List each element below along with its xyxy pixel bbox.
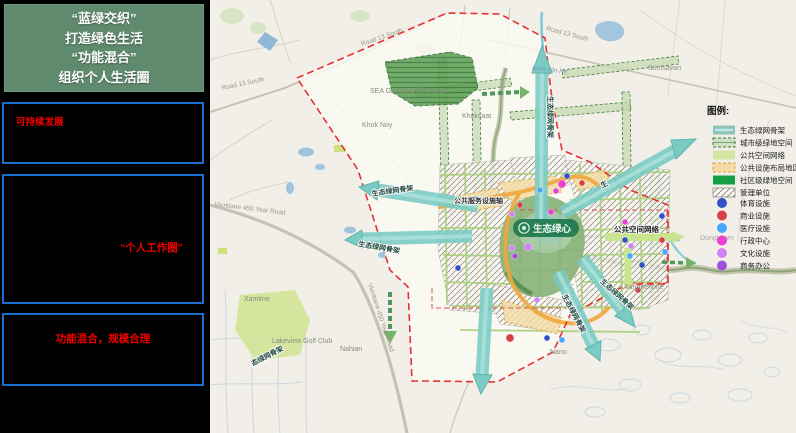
sidebar: “蓝绿交织” 打造绿色生活 “功能混合” 组织个人生活圈 可持续发展 “个人工作… (0, 0, 210, 433)
swatch-public-space (713, 151, 735, 160)
swatch-city-green (713, 138, 735, 147)
facility-dot (517, 202, 523, 208)
nano-label: Nano (550, 349, 567, 356)
headline-line-1: “蓝绿交织” (5, 9, 203, 29)
dot-sports (717, 198, 727, 208)
legend-label-medical: 医疗设施 (740, 223, 770, 233)
note-box-work-circle: “个人工作圈” (2, 174, 204, 304)
facility-dot (627, 253, 633, 259)
facility-dot (628, 243, 634, 249)
facility-dot (622, 237, 628, 243)
dot-commercial (717, 211, 727, 221)
legend-label-eco-network: 生态绿网骨架 (740, 125, 785, 135)
nahian-label: Nahian (340, 346, 362, 353)
note-label-work-circle: “个人工作圈” (120, 240, 183, 255)
facility-dot (506, 334, 514, 342)
khok-noy-label: Khok Noy (362, 122, 393, 129)
legend-label-community-green: 社区级绿地空间 (740, 175, 793, 185)
corridor-label-n: 生态绿网骨架 (546, 96, 555, 138)
dongkham-label: Dongkham (700, 235, 734, 242)
note-label-sustainability: 可持续发展 (16, 114, 64, 128)
legend-label-admin: 行政中心 (740, 236, 770, 246)
facility-dot (559, 337, 565, 343)
eco-green-heart-label: 生态绿心 (513, 219, 579, 237)
facility-dot (534, 297, 540, 303)
facility-dot (639, 262, 645, 268)
somsavan-label: Somsavan (648, 65, 681, 72)
note-box-mixed-use: 功能混合，规模合理 (2, 313, 204, 386)
facility-dot (553, 188, 559, 194)
swatch-management-unit (713, 188, 735, 197)
eco-green-heart-text: 生态绿心 (533, 223, 572, 235)
facility-dot (455, 265, 461, 271)
map-canvas: 生态绿心 Road 13 South Road 13 South Road 13… (210, 0, 796, 433)
facility-dot (579, 180, 585, 186)
legend-label-city-green: 城市级绿地空间 (740, 138, 793, 148)
headline-line-3: “功能混合” (5, 48, 203, 68)
facility-dot (659, 213, 665, 219)
facility-dot (509, 211, 515, 217)
legend-label-public-space: 公共空间网络 (740, 150, 785, 160)
legend-label-commercial: 商业设施 (740, 211, 770, 221)
swatch-community-green (713, 176, 735, 185)
facility-dot (564, 173, 570, 179)
legend-label-culture: 文化设施 (740, 248, 770, 258)
xanghenone-label: Xanghenone (624, 284, 664, 291)
dot-business (717, 261, 727, 271)
note-box-sustainability: 可持续发展 (2, 102, 204, 164)
xamkne-label: Xamkne (244, 296, 270, 303)
facility-dot (659, 237, 665, 243)
dot-culture (717, 248, 727, 258)
facility-dot (544, 335, 550, 341)
headline-line-4: 组织个人生活圈 (5, 68, 203, 88)
swatch-facility-zone (713, 163, 735, 172)
facility-dot (509, 245, 515, 251)
legend-label-sports: 体育设施 (740, 198, 770, 208)
planning-map: 生态绿心 Road 13 South Road 13 South Road 13… (210, 0, 796, 433)
legend-label-business: 商务办公 (740, 261, 770, 271)
facility-dot (662, 249, 668, 255)
public-space-net-label: 公共空间网络 (614, 224, 659, 234)
legend-title: 图例: (707, 105, 729, 117)
axis-label: 公共服务设施轴 (454, 196, 503, 205)
dot-admin (717, 236, 727, 246)
khoksaat-label: Khoksaat (462, 113, 491, 120)
sea-games-label: SEA Games Golf Course (370, 88, 448, 95)
headline-line-2: 打造绿色生活 (5, 29, 203, 49)
legend-label-management-unit: 管理单位 (740, 188, 770, 198)
facility-dot (548, 209, 554, 215)
slide: “蓝绿交织” 打造绿色生活 “功能混合” 组织个人生活圈 可持续发展 “个人工作… (0, 0, 796, 433)
legend-label-facility-zone: 公共设施布局地区 (740, 163, 796, 173)
lakeview-label: Lakeview Golf Club (272, 338, 332, 345)
facility-dot (524, 243, 532, 251)
dot-medical (717, 223, 727, 233)
facility-dot (512, 253, 518, 259)
facility-dot (558, 180, 566, 188)
note-label-mixed-use: 功能混合，规模合理 (4, 331, 202, 346)
target-dot-icon (522, 226, 526, 230)
headline-box: “蓝绿交织” 打造绿色生活 “功能混合” 组织个人生活圈 (4, 4, 204, 92)
facility-dot (537, 187, 543, 193)
